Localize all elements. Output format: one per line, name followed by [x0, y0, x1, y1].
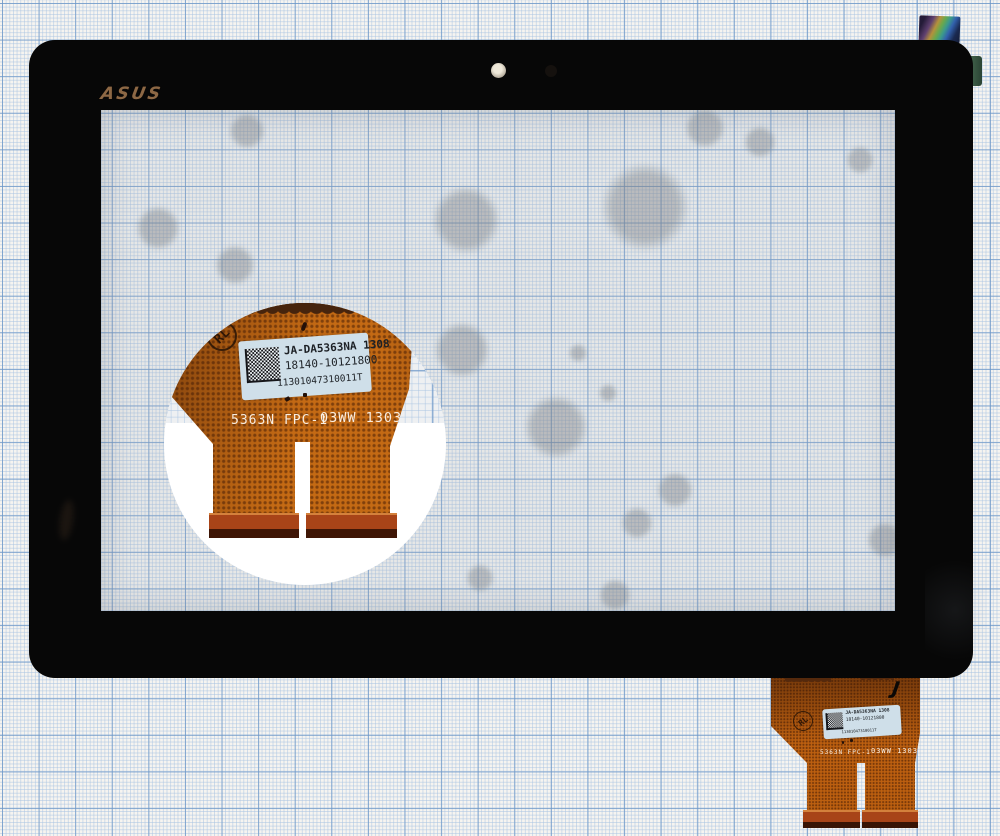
tablet-bezel-frame	[29, 40, 973, 678]
light-sensor-window	[545, 65, 557, 77]
datamatrix-code	[825, 712, 843, 730]
front-camera-hole	[491, 63, 506, 78]
flex-serrated-edge	[785, 677, 831, 685]
flex-silkscreen-right: 03WW 1303	[871, 747, 918, 755]
handwritten-j-mark: J	[890, 678, 915, 707]
flex-connector-right	[862, 810, 918, 828]
product-photo: RL JA-DA5363NA 1308 18140-10121800 11301…	[0, 0, 1000, 836]
digitizer-flex-cable: RL JA-DA5363NA 1308 18140-10121800 11301…	[770, 673, 925, 836]
flex-connector-left	[803, 810, 860, 828]
model-number: 18140-10121800	[846, 716, 885, 723]
bezel-reflection	[925, 545, 985, 675]
serial-number: 11301047310011T	[841, 727, 876, 734]
asus-logo: ASUS	[99, 84, 164, 104]
flex-part-label: JA-DA5363NA 1308 18140-10121800 11301047…	[822, 705, 902, 740]
flex-silkscreen-left: 5363N FPC-1	[820, 749, 871, 756]
